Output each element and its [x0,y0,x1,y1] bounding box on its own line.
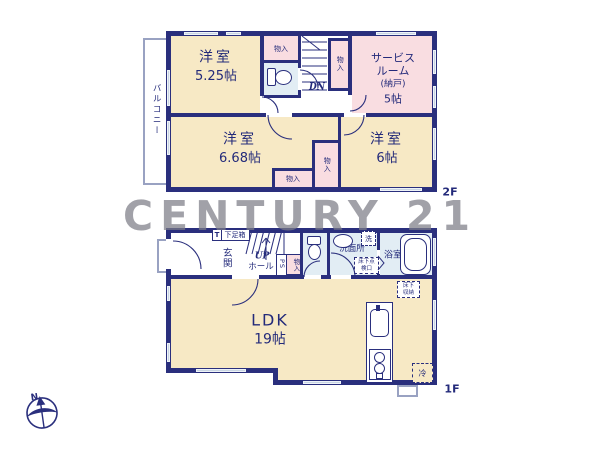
stairs-2f-treads [302,36,327,90]
floor-plan-canvas: バルコニー 洋室 5.25帖 サービス ルーム (納戸) 5帖 洋室 [0,0,600,450]
century21-watermark: CENTURY 21 [123,192,477,240]
compass-north-label: N [30,392,39,403]
door-arcs [173,70,384,305]
stairs-1f-arrow [262,238,270,260]
compass-icon: N [23,390,60,430]
